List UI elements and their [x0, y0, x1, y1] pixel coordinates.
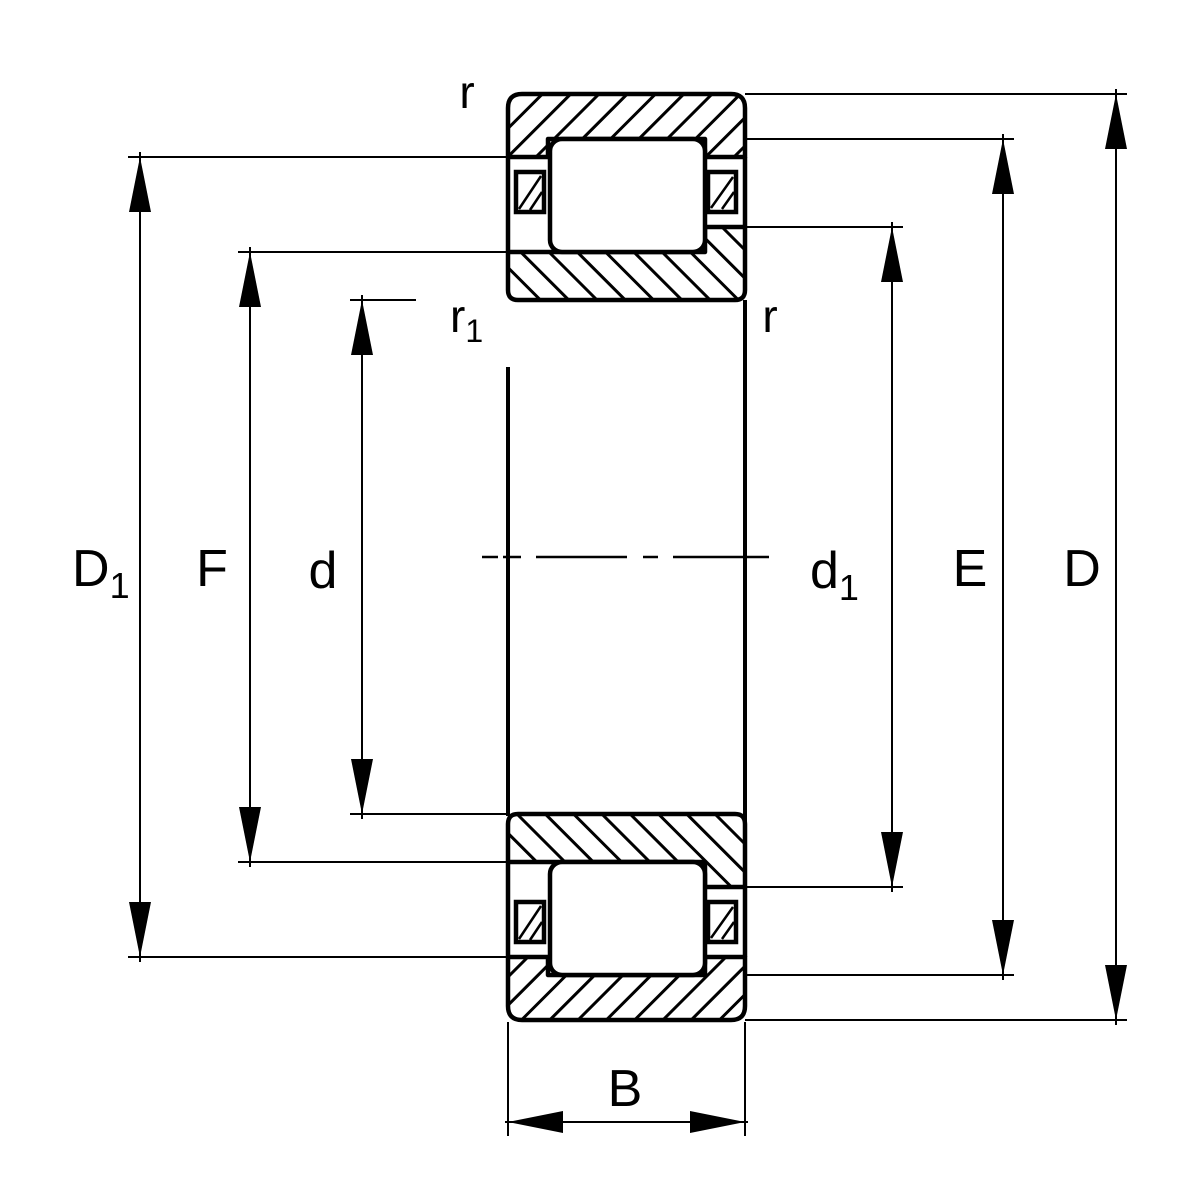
arrowhead-down — [992, 920, 1014, 975]
label-r-right: r — [762, 290, 777, 342]
cage-pocket-top-right — [708, 172, 736, 212]
label-r1: r1 — [450, 290, 483, 349]
arrowhead-up — [992, 139, 1014, 194]
label-d: d — [309, 542, 338, 600]
label-E: E — [953, 540, 988, 598]
arrowhead-down — [881, 832, 903, 887]
label-F: F — [196, 540, 228, 598]
label-B: B — [608, 1060, 643, 1118]
label-d1: d1 — [810, 542, 859, 608]
arrowhead-down — [129, 902, 151, 957]
bearing-dimension-drawing: D1 F d d1 E D B r r1 r — [0, 0, 1200, 1200]
roller-top — [550, 139, 705, 252]
arrowhead-down — [351, 759, 373, 814]
cage-pocket-bottom-left — [516, 902, 544, 942]
arrowhead-right — [690, 1111, 745, 1133]
arrowhead-left — [508, 1111, 563, 1133]
top-half-section — [508, 94, 745, 300]
arrowhead-up — [239, 252, 261, 307]
arrowhead-up — [881, 227, 903, 282]
roller-bottom — [550, 862, 705, 975]
bearing-cross-section-svg: D1 F d d1 E D B r r1 r — [0, 0, 1200, 1200]
arrowhead-up — [351, 300, 373, 355]
label-D: D — [1063, 540, 1101, 598]
arrowhead-up — [1105, 94, 1127, 149]
bottom-half-section — [508, 814, 745, 1020]
arrowhead-down — [239, 807, 261, 862]
label-D1: D1 — [72, 540, 130, 606]
label-r-top: r — [459, 66, 474, 118]
arrowhead-down — [1105, 965, 1127, 1020]
cage-pocket-bottom-right — [708, 902, 736, 942]
cage-pocket-top-left — [516, 172, 544, 212]
arrowhead-up — [129, 157, 151, 212]
